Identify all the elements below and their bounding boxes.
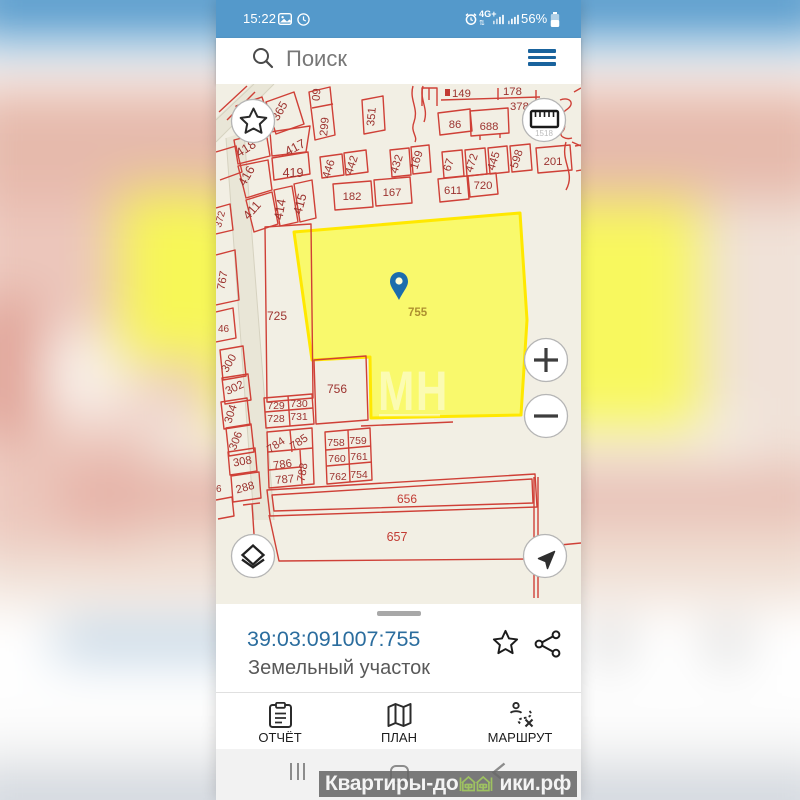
svg-text:725: 725 [267, 309, 287, 323]
svg-text:760: 760 [328, 453, 346, 465]
svg-text:201: 201 [544, 156, 563, 168]
svg-text:759: 759 [349, 435, 367, 447]
svg-text:6: 6 [216, 484, 222, 495]
svg-text:758: 758 [327, 437, 345, 449]
svg-text:МН: МН [378, 360, 449, 422]
svg-text:86: 86 [449, 119, 462, 131]
svg-text:09: 09 [310, 88, 323, 102]
svg-text:731: 731 [290, 411, 308, 423]
svg-text:611: 611 [444, 185, 462, 197]
svg-text:754: 754 [350, 469, 368, 481]
svg-text:756: 756 [327, 382, 347, 396]
svg-text:656: 656 [397, 492, 417, 506]
svg-text:730: 730 [290, 398, 308, 410]
svg-text:729: 729 [267, 400, 285, 412]
svg-text:787: 787 [275, 473, 295, 487]
svg-text:755: 755 [408, 307, 428, 319]
svg-text:182: 182 [343, 191, 362, 203]
svg-text:351: 351 [365, 107, 379, 127]
svg-text:761: 761 [350, 451, 368, 463]
svg-text:299: 299 [318, 117, 332, 137]
svg-text:657: 657 [387, 530, 408, 544]
svg-text:720: 720 [474, 180, 493, 192]
svg-text:688: 688 [480, 121, 499, 133]
svg-text:762: 762 [329, 471, 347, 483]
svg-text:167: 167 [383, 187, 402, 199]
svg-text:419: 419 [283, 166, 304, 180]
svg-text:728: 728 [267, 413, 285, 425]
svg-text:1518: 1518 [535, 129, 553, 138]
svg-text:149: 149 [452, 88, 471, 100]
svg-text:46: 46 [218, 324, 230, 335]
svg-text:178: 178 [503, 86, 522, 98]
